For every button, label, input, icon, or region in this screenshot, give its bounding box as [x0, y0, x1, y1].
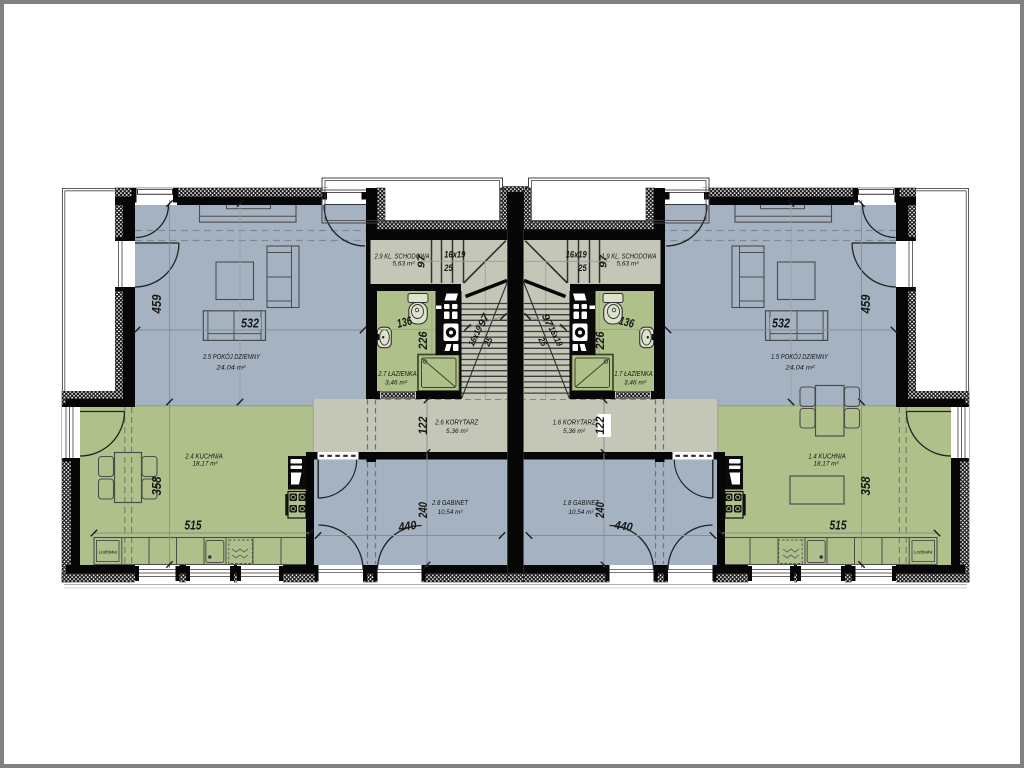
svg-text:226: 226	[416, 331, 430, 350]
svg-text:5,63 m²: 5,63 m²	[617, 260, 640, 267]
svg-text:358: 358	[858, 476, 873, 496]
svg-text:Lodówka: Lodówka	[914, 550, 933, 555]
svg-text:16x19: 16x19	[444, 250, 466, 261]
svg-text:16x19: 16x19	[566, 250, 588, 261]
svg-text:18,17 m²: 18,17 m²	[193, 461, 219, 468]
svg-text:25: 25	[577, 263, 587, 274]
svg-text:515: 515	[185, 519, 203, 533]
svg-text:18,17 m²: 18,17 m²	[814, 461, 840, 468]
svg-text:1.9 KL. SCHODOWA: 1.9 KL. SCHODOWA	[602, 253, 657, 260]
svg-text:440: 440	[613, 518, 634, 535]
svg-text:5,63 m²: 5,63 m²	[393, 260, 416, 267]
svg-text:358: 358	[149, 476, 164, 496]
svg-text:3,46 m²: 3,46 m²	[385, 380, 408, 387]
svg-text:122: 122	[593, 416, 607, 434]
svg-text:440: 440	[397, 518, 418, 535]
svg-text:2.6 KORYTARZ: 2.6 KORYTARZ	[434, 419, 479, 426]
svg-text:122: 122	[416, 416, 430, 434]
svg-text:240: 240	[593, 502, 607, 519]
svg-text:10,54 m²: 10,54 m²	[569, 509, 595, 516]
svg-text:Lodówka: Lodówka	[99, 550, 118, 555]
svg-text:2.4 KUCHNIA: 2.4 KUCHNIA	[184, 453, 223, 460]
svg-text:1.6 KORYTARZ: 1.6 KORYTARZ	[553, 419, 597, 426]
svg-text:1.5 POKÓJ DZIENNY: 1.5 POKÓJ DZIENNY	[771, 352, 829, 361]
svg-text:459: 459	[858, 294, 873, 315]
svg-text:2.8 GABINET: 2.8 GABINET	[431, 500, 468, 507]
svg-text:1.4 KUCHNIA: 1.4 KUCHNIA	[808, 453, 846, 460]
svg-text:459: 459	[149, 294, 164, 315]
svg-text:24.04 m²: 24.04 m²	[784, 365, 815, 372]
svg-text:1.7 ŁAZIENKA: 1.7 ŁAZIENKA	[614, 371, 653, 378]
svg-text:240: 240	[416, 502, 430, 519]
svg-text:5,36 m²: 5,36 m²	[446, 428, 469, 435]
svg-text:25: 25	[443, 263, 453, 274]
svg-text:97: 97	[598, 254, 610, 268]
svg-text:226: 226	[593, 331, 607, 350]
svg-text:2.7 ŁAZIENKA: 2.7 ŁAZIENKA	[377, 371, 417, 378]
svg-text:10,54 m²: 10,54 m²	[438, 509, 464, 516]
svg-text:3,46 m²: 3,46 m²	[624, 380, 647, 387]
svg-text:515: 515	[830, 519, 848, 533]
svg-text:532: 532	[241, 316, 260, 331]
svg-text:97: 97	[416, 254, 428, 268]
svg-text:2.5 POKÓJ DZIENNY: 2.5 POKÓJ DZIENNY	[202, 352, 261, 361]
svg-text:5,36 m²: 5,36 m²	[563, 428, 586, 435]
svg-text:24.04 m²: 24.04 m²	[215, 365, 246, 372]
svg-text:532: 532	[772, 316, 791, 331]
